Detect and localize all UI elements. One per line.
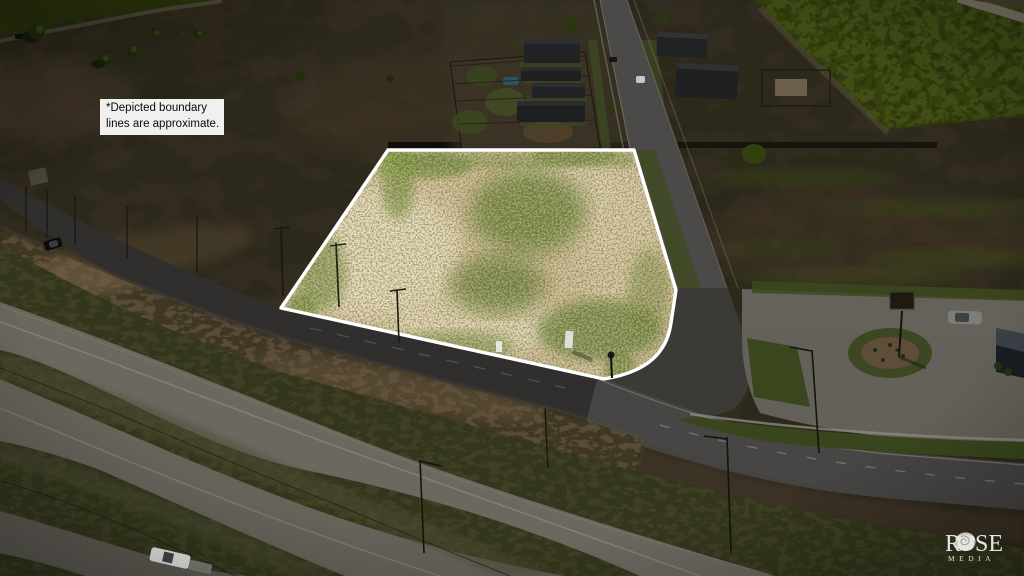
- svg-text:MEDIA: MEDIA: [948, 554, 995, 563]
